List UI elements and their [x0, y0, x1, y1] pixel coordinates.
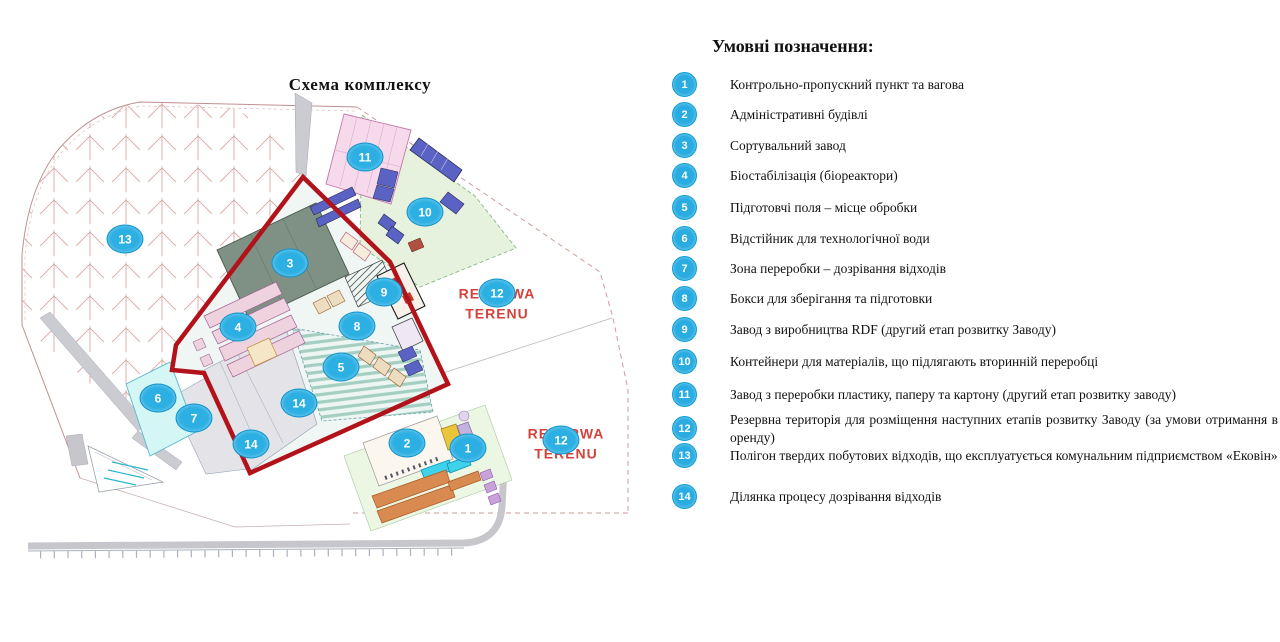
legend-item-3: 3 Сортувальний завод	[672, 133, 1278, 158]
legend-item-11: 11 Завод з переробки пластику, паперу та…	[672, 382, 1278, 407]
legend-item-6: 6 Відстійник для технологічної води	[672, 226, 1278, 251]
legend-item-label: Контейнери для матеріалів, що підлягають…	[730, 353, 1278, 371]
map-marker-3: 3	[272, 249, 309, 278]
legend-item-9: 9 Завод з виробництва RDF (другий етап р…	[672, 317, 1278, 342]
legend-item-4: 4 Біостабілізація (біореактори)	[672, 163, 1278, 188]
legend-number-badge: 7	[672, 256, 697, 281]
legend-item-14: 14 Ділянка процесу дозрівання відходів	[672, 484, 1278, 509]
legend-item-label: Завод з виробництва RDF (другий етап роз…	[730, 321, 1278, 339]
legend-item-label: Біостабілізація (біореактори)	[730, 167, 1278, 185]
legend-item-10: 10 Контейнери для матеріалів, що підляга…	[672, 349, 1278, 374]
legend-number-badge: 8	[672, 286, 697, 311]
legend-number-badge: 14	[672, 484, 697, 509]
legend-number-badge: 10	[672, 349, 697, 374]
legend-item-2: 2 Адміністративні будівлі	[672, 102, 1278, 127]
map-title: Схема комплексу	[289, 75, 432, 95]
legend-item-5: 5 Підготовчі поля – місце обробки	[672, 195, 1278, 220]
map-marker-9: 9	[366, 278, 403, 307]
map-marker-13: 13	[107, 225, 144, 254]
legend-item-7: 7 Зона переробки – дозрівання відходів	[672, 256, 1278, 281]
legend-number-badge: 11	[672, 382, 697, 407]
map-marker-8: 8	[339, 312, 376, 341]
legend-number-badge: 5	[672, 195, 697, 220]
map-marker-1: 1	[450, 434, 487, 463]
legend-item-label: Контрольно-пропускний пункт та вагова	[730, 76, 1278, 94]
map-marker-5: 5	[323, 353, 360, 382]
legend-number-badge: 2	[672, 102, 697, 127]
legend-item-label: Зона переробки – дозрівання відходів	[730, 260, 1278, 278]
legend-title: Умовні позначення:	[712, 36, 874, 57]
legend-item-label: Резервна територія для розміщення наступ…	[730, 411, 1278, 447]
legend-item-label: Бокси для зберігання та підготовки	[730, 290, 1278, 308]
map-marker-6: 6	[140, 384, 177, 413]
legend: Умовні позначення: 1 Контрольно-пропускн…	[660, 0, 1280, 642]
site-scheme-page: Схема комплексу REZERWA TERENU REZERWA T…	[0, 0, 1280, 642]
map-marker-12-lower: 12	[543, 426, 580, 455]
legend-item-8: 8 Бокси для зберігання та підготовки	[672, 286, 1278, 311]
site-plan-drawing	[0, 0, 660, 642]
legend-item-12: 12 Резервна територія для розміщення нас…	[672, 411, 1278, 447]
map-marker-4: 4	[220, 313, 257, 342]
legend-number-badge: 12	[672, 416, 697, 441]
map-marker-11: 11	[347, 143, 384, 172]
map-marker-2: 2	[389, 429, 426, 458]
map-marker-12-upper: 12	[479, 279, 516, 308]
legend-item-label: Полігон твердих побутових відходів, що е…	[730, 447, 1278, 465]
legend-number-badge: 3	[672, 133, 697, 158]
legend-number-badge: 9	[672, 317, 697, 342]
map-marker-14-lower: 14	[233, 430, 270, 459]
legend-item-13: 13 Полігон твердих побутових відходів, щ…	[672, 443, 1278, 468]
legend-item-label: Відстійник для технологічної води	[730, 230, 1278, 248]
map-marker-10: 10	[407, 198, 444, 227]
map-marker-14-upper: 14	[281, 389, 318, 418]
legend-item-label: Ділянка процесу дозрівання відходів	[730, 488, 1278, 506]
legend-item-label: Адміністративні будівлі	[730, 106, 1278, 124]
entrance-zone-1-2	[344, 405, 512, 531]
legend-number-badge: 13	[672, 443, 697, 468]
map-marker-7: 7	[176, 404, 213, 433]
legend-item-label: Завод з переробки пластику, паперу та ка…	[730, 386, 1278, 404]
legend-number-badge: 4	[672, 163, 697, 188]
legend-number-badge: 1	[672, 72, 697, 97]
legend-item-label: Підготовчі поля – місце обробки	[730, 199, 1278, 217]
legend-item-label: Сортувальний завод	[730, 137, 1278, 155]
legend-number-badge: 6	[672, 226, 697, 251]
legend-item-1: 1 Контрольно-пропускний пункт та вагова	[672, 72, 1278, 97]
